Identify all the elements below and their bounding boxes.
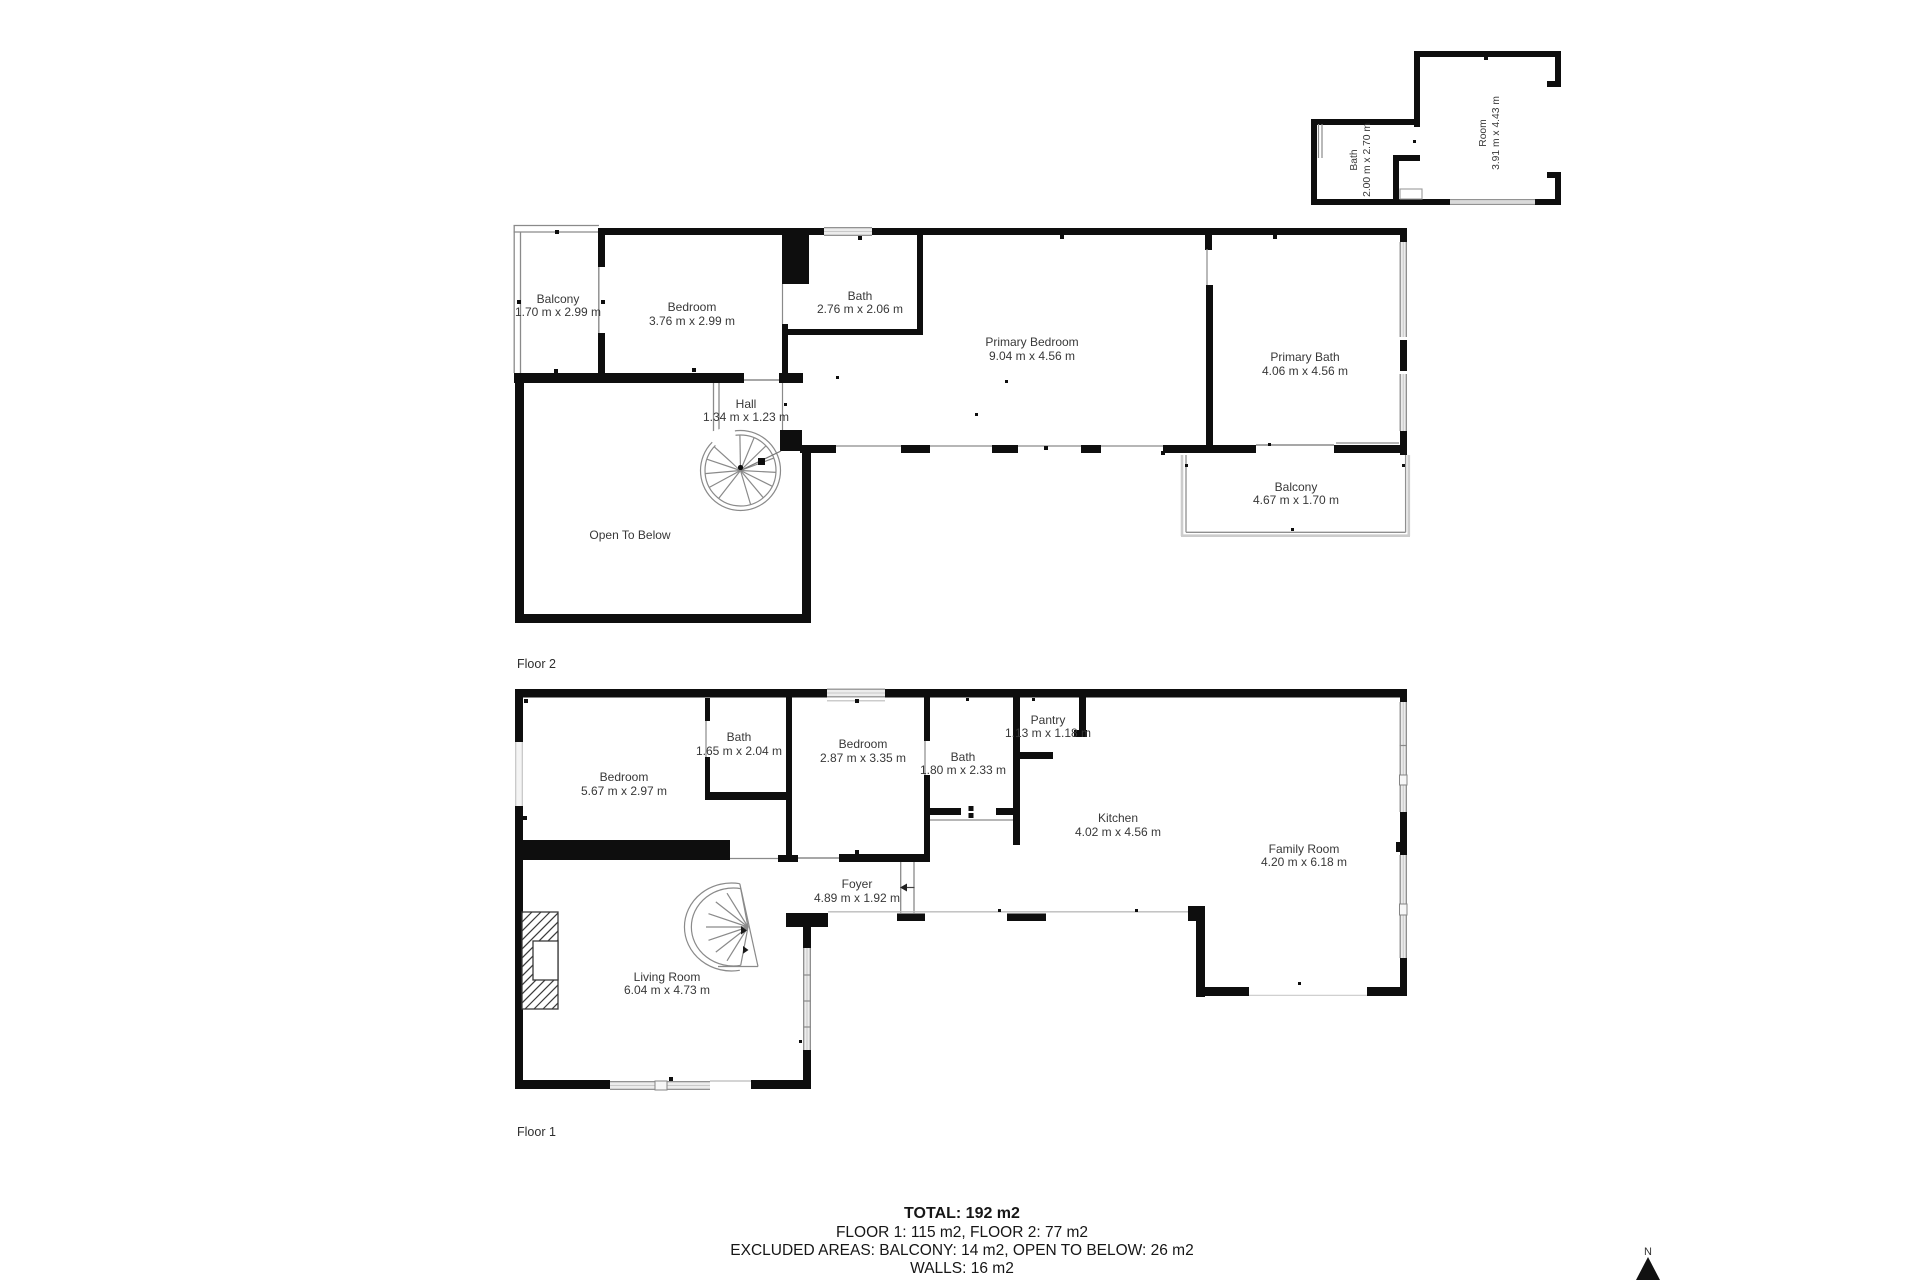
svg-text:Foyer: Foyer <box>842 877 873 891</box>
svg-text:N: N <box>1644 1246 1652 1258</box>
svg-text:Living Room: Living Room <box>634 970 701 984</box>
svg-text:Floor 2: Floor 2 <box>517 657 556 671</box>
svg-text:Balcony: Balcony <box>1275 480 1318 494</box>
svg-text:9.04 m x 4.56 m: 9.04 m x 4.56 m <box>989 349 1075 363</box>
svg-text:4.20 m x 6.18 m: 4.20 m x 6.18 m <box>1261 855 1347 869</box>
svg-text:TOTAL: 192 m2: TOTAL: 192 m2 <box>904 1205 1020 1222</box>
svg-text:6.04 m x 4.73 m: 6.04 m x 4.73 m <box>624 983 710 997</box>
svg-text:1.34 m x 1.23 m: 1.34 m x 1.23 m <box>703 410 789 424</box>
svg-text:Pantry: Pantry <box>1031 713 1066 727</box>
svg-text:Balcony: Balcony <box>537 292 580 306</box>
svg-text:1.13 m x 1.18 m: 1.13 m x 1.18 m <box>1005 726 1091 740</box>
svg-text:Bath: Bath <box>848 289 873 303</box>
svg-text:Floor 1: Floor 1 <box>517 1125 556 1139</box>
svg-text:2.00 m x 2.70 m: 2.00 m x 2.70 m <box>1362 123 1373 197</box>
svg-text:Bath: Bath <box>951 750 976 764</box>
svg-text:4.89 m x 1.92 m: 4.89 m x 1.92 m <box>814 891 900 905</box>
svg-text:4.67 m x 1.70 m: 4.67 m x 1.70 m <box>1253 493 1339 507</box>
svg-text:Bedroom: Bedroom <box>668 300 717 314</box>
svg-text:3.91 m x 4.43 m: 3.91 m x 4.43 m <box>1491 96 1502 170</box>
svg-text:Primary Bedroom: Primary Bedroom <box>985 335 1078 349</box>
svg-text:4.06 m x 4.56 m: 4.06 m x 4.56 m <box>1262 364 1348 378</box>
svg-text:2.87 m x 3.35 m: 2.87 m x 3.35 m <box>820 751 906 765</box>
svg-text:Room: Room <box>1478 119 1489 146</box>
svg-text:Bedroom: Bedroom <box>600 770 649 784</box>
svg-text:2.76 m x 2.06 m: 2.76 m x 2.06 m <box>817 302 903 316</box>
svg-text:1.80 m x 2.33 m: 1.80 m x 2.33 m <box>920 763 1006 777</box>
svg-text:Kitchen: Kitchen <box>1098 811 1138 825</box>
svg-text:Bath: Bath <box>1349 149 1360 170</box>
svg-text:Hall: Hall <box>736 397 757 411</box>
svg-text:1.65 m x 2.04 m: 1.65 m x 2.04 m <box>696 744 782 758</box>
svg-text:EXCLUDED AREAS: BALCONY: 14 m2: EXCLUDED AREAS: BALCONY: 14 m2, OPEN TO … <box>730 1242 1193 1259</box>
svg-text:WALLS: 16 m2: WALLS: 16 m2 <box>910 1260 1014 1277</box>
svg-text:1.70 m x 2.99 m: 1.70 m x 2.99 m <box>515 305 601 319</box>
svg-text:Family Room: Family Room <box>1269 842 1340 856</box>
svg-text:3.76 m x 2.99 m: 3.76 m x 2.99 m <box>649 314 735 328</box>
svg-text:5.67 m x 2.97 m: 5.67 m x 2.97 m <box>581 784 667 798</box>
svg-text:FLOOR 1: 115 m2, FLOOR 2: 77 m: FLOOR 1: 115 m2, FLOOR 2: 77 m2 <box>836 1224 1088 1241</box>
svg-text:Open To Below: Open To Below <box>589 528 670 542</box>
svg-text:4.02 m x 4.56 m: 4.02 m x 4.56 m <box>1075 825 1161 839</box>
svg-text:Bath: Bath <box>727 730 752 744</box>
svg-text:Bedroom: Bedroom <box>839 737 888 751</box>
svg-text:Primary Bath: Primary Bath <box>1270 350 1339 364</box>
